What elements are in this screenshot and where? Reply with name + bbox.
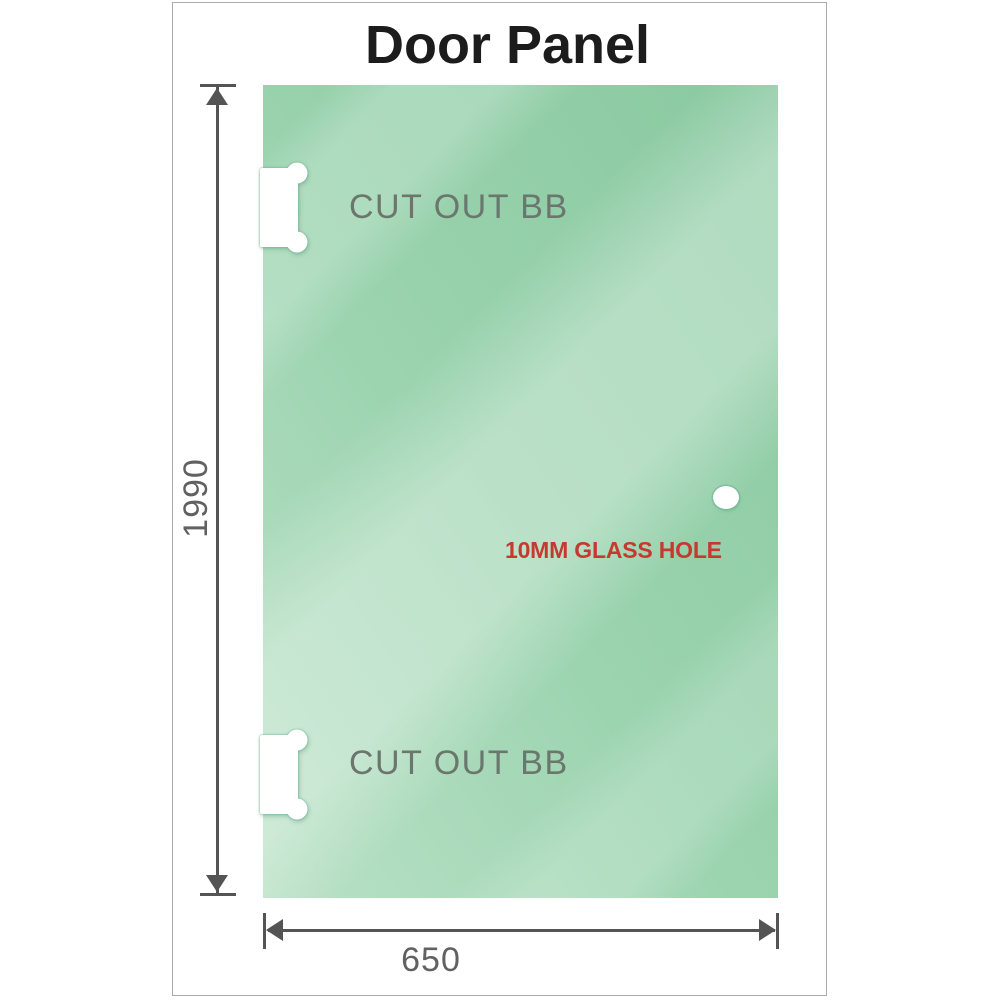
height-dimension-label: 1990	[177, 428, 215, 568]
height-dim-line	[216, 87, 219, 893]
width-dimension-label: 650	[381, 941, 481, 980]
hinge-cutout-shape	[260, 730, 308, 820]
hinge-cutout-bottom	[263, 729, 311, 823]
arrow-up-icon	[206, 88, 228, 105]
hinge-cutout-shape	[260, 163, 308, 253]
diagram-title: Door Panel	[180, 14, 835, 76]
glass-hole	[713, 486, 739, 509]
cutout-label-bottom: CUT OUT BB	[349, 744, 569, 783]
width-dim-line	[268, 929, 775, 932]
glass-hole-label: 10MM GLASS HOLE	[505, 537, 720, 564]
height-dim-cap-bottom	[200, 893, 236, 896]
width-dim-cap-right	[776, 913, 779, 949]
arrow-down-icon	[206, 875, 228, 892]
cutout-label-top: CUT OUT BB	[349, 188, 569, 227]
hinge-cutout-top	[263, 162, 311, 256]
arrow-right-icon	[759, 919, 776, 941]
arrow-left-icon	[266, 919, 283, 941]
